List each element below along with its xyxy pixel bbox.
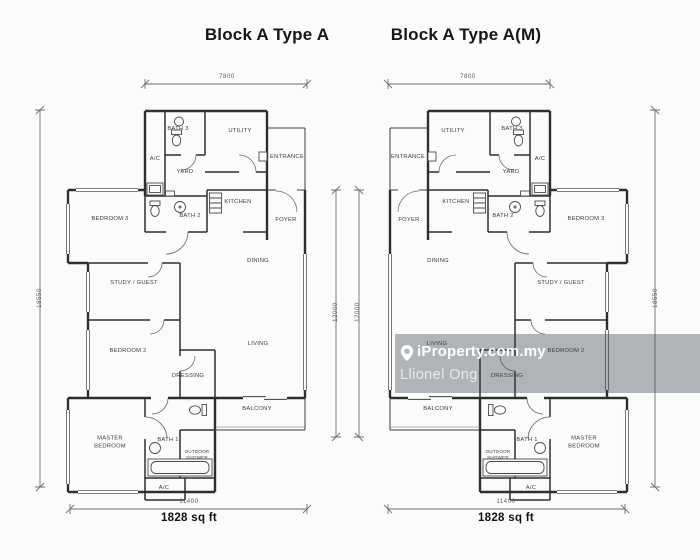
room-label-study-guest: STUDY / GUEST — [110, 280, 158, 288]
watermark-brand: iProperty.com.my — [417, 343, 546, 360]
room-label-kitchen: KITCHEN — [224, 199, 251, 207]
room-label-bedroom-3: BEDROOM 3 — [91, 216, 128, 224]
watermark-overlay: iProperty.com.my Llionel Ong — [395, 334, 700, 393]
room-label-bath-1: BATH 1 — [516, 437, 537, 445]
room-label-study-guest: STUDY / GUEST — [537, 280, 585, 288]
room-label-bedroom-3: BEDROOM 3 — [567, 216, 604, 224]
room-label-utility: UTILITY — [228, 128, 251, 136]
room-label-utility: UTILITY — [441, 128, 464, 136]
room-label-a-c: A/C — [150, 156, 160, 164]
floorplan-page: Block A Type A Block A Type A(M) BATH 3U… — [0, 0, 700, 560]
room-label-entrance: ENTRANCE — [270, 154, 304, 162]
floorplan-drawing — [0, 0, 700, 560]
watermark-agent-name: Llionel Ong — [400, 367, 478, 383]
dim-inner-left: 12000 — [333, 302, 339, 322]
room-label-kitchen: KITCHEN — [442, 199, 469, 207]
room-label-a-c: A/C — [526, 485, 536, 493]
dim-bottom-right: 11400 — [496, 499, 515, 505]
dim-top-right: 7800 — [460, 74, 476, 80]
map-pin-icon — [399, 344, 415, 362]
dim-side-right: 18550 — [653, 288, 659, 308]
room-label-outdoor-shower: OUTDOOR SHOWER — [183, 449, 211, 461]
room-label-bedroom-2: BEDROOM 2 — [109, 348, 146, 356]
room-label-foyer: FOYER — [398, 217, 419, 225]
area-label-left: 1828 sq ft — [161, 512, 217, 524]
area-label-right: 1828 sq ft — [478, 512, 534, 524]
room-label-balcony: BALCONY — [423, 406, 452, 414]
room-label-dining: DINING — [247, 258, 269, 266]
room-label-bath-3: BATH 3 — [501, 126, 522, 134]
room-label-foyer: FOYER — [275, 217, 296, 225]
room-label-outdoor-shower: OUTDOOR SHOWER — [484, 449, 512, 461]
dim-side-left: 18550 — [37, 288, 43, 308]
room-label-dressing: DRESSING — [172, 373, 204, 381]
room-label-entrance: ENTRANCE — [391, 154, 425, 162]
room-label-balcony: BALCONY — [242, 406, 271, 414]
room-label-bath-1: BATH 1 — [157, 437, 178, 445]
room-label-dining: DINING — [427, 258, 449, 266]
room-label-bath-2: BATH 2 — [179, 213, 200, 221]
dim-bottom-left: 11400 — [179, 499, 198, 505]
plan-title-left: Block A Type A — [205, 25, 329, 45]
room-label-living: LIVING — [248, 341, 269, 349]
dim-inner-right: 12000 — [355, 302, 361, 322]
room-label-master-bedroom: MASTER BEDROOM — [86, 435, 134, 450]
room-label-master-bedroom: MASTER BEDROOM — [560, 435, 608, 450]
room-label-a-c: A/C — [535, 156, 545, 164]
dim-top-left: 7800 — [219, 74, 235, 80]
room-label-bath-2: BATH 2 — [492, 213, 513, 221]
room-label-yard: YARD — [503, 169, 520, 177]
plan-title-right: Block A Type A(M) — [391, 25, 541, 45]
room-label-yard: YARD — [177, 169, 194, 177]
room-label-bath-3: BATH 3 — [167, 126, 188, 134]
room-label-a-c: A/C — [159, 485, 169, 493]
